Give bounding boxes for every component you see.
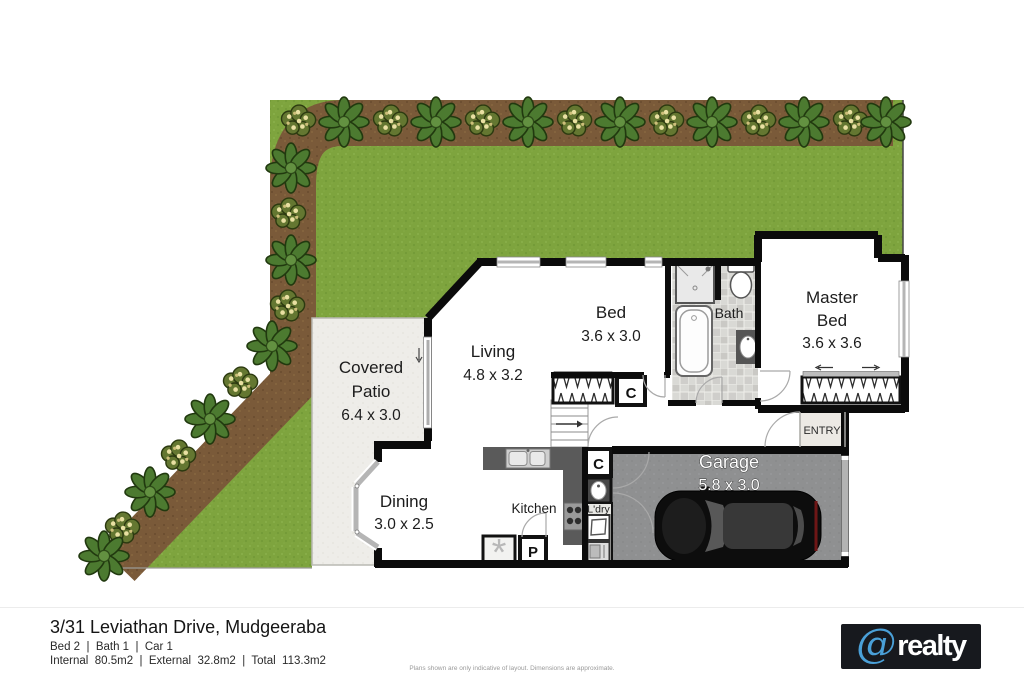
bed-label: Bed [596,303,626,322]
shrub-icon [503,97,553,147]
floorplan-drawing: C C L'dry P * [0,0,1024,610]
shrub-icon [266,235,316,285]
bed-dims: 3.6 x 3.0 [581,328,641,345]
shrub-icon [779,97,829,147]
pantry: P [520,537,546,563]
shrub-icon [247,321,297,371]
footer: 3/31 Leviathan Drive, Mudgeeraba Bed 2 |… [0,607,1024,683]
master-label-2: Bed [817,311,847,330]
stairs [551,400,588,447]
logo-at-symbol: @ [856,624,896,664]
entry-label: ENTRY [803,425,841,437]
shrub-icon [595,97,645,147]
svg-text:C: C [626,385,637,402]
shrub-icon [411,97,461,147]
car [655,487,821,566]
property-summary: Bed 2 | Bath 1 | Car 1 [50,641,173,653]
garage-dims: 5.8 x 3.0 [698,477,759,494]
shower [676,264,714,303]
patio-dims: 6.4 x 3.0 [341,407,401,424]
garage-label: Garage [699,452,759,472]
cooktop [564,503,584,530]
closet-bed: C [617,377,645,405]
shrub-icon [125,467,175,517]
dining-label: Dining [380,492,428,511]
patio-label-1: Covered [339,358,403,377]
svg-text:C: C [593,456,604,473]
property-address: 3/31 Leviathan Drive, Mudgeeraba [50,617,326,638]
agency-logo: @realty [841,624,981,669]
floorplan-page: C C L'dry P * [0,0,1024,683]
washing-machine [588,542,610,561]
logo-text: realty [897,630,965,663]
garage-door [842,456,849,556]
shrub-icon [79,531,129,581]
bath-label: Bath [715,305,744,321]
living-label: Living [471,342,515,361]
svg-text:P: P [528,544,538,561]
closet-hall: C [586,449,611,476]
bathtub [676,306,712,376]
bed-window [566,257,606,267]
laundry-label: L'dry [587,504,610,516]
patio-label-2: Patio [352,382,391,401]
master-window [899,281,909,357]
laundry-tub [588,515,610,540]
shrub-icon [861,97,911,147]
shrub-icon [266,143,316,193]
master-dims: 3.6 x 3.6 [802,335,861,352]
bath-window [645,257,662,267]
toilet [728,263,754,298]
dining-dims: 3.0 x 2.5 [374,516,433,533]
laundry: L'dry [585,503,612,563]
living-window [497,257,540,267]
living-dims: 4.8 x 3.2 [463,367,522,384]
kitchen-label: Kitchen [511,501,556,516]
wc-fixture [586,478,611,503]
shrub-icon [185,394,235,444]
shrub-icon [687,97,737,147]
master-label-1: Master [806,288,858,307]
shrub-icon [319,97,369,147]
